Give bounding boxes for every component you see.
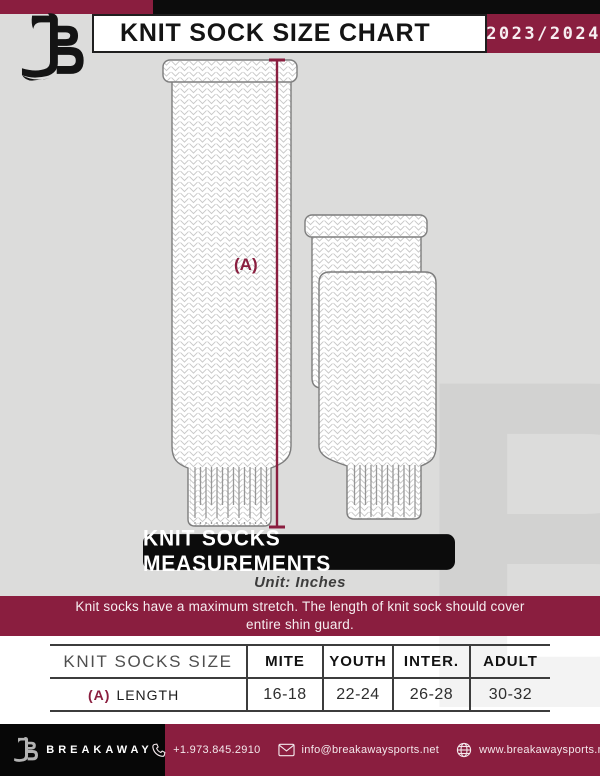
table-header-adult: ADULT xyxy=(470,645,550,678)
globe-icon xyxy=(456,742,472,758)
table-header-youth: YOUTH xyxy=(323,645,393,678)
email-address: info@breakawaysports.net xyxy=(302,744,440,756)
website-url: www.breakawaysports.net xyxy=(479,744,600,756)
title-box: KNIT SOCK SIZE CHART xyxy=(92,14,487,53)
contact-email: info@breakawaysports.net xyxy=(278,743,440,757)
unit-label: Unit: Inches xyxy=(0,574,600,591)
length-value-mite: 16-18 xyxy=(247,678,323,711)
knit-sock-size-chart-page: B KNIT SOCK SIZE CHART 2023/2024 xyxy=(0,0,600,776)
stretch-note-text: Knit socks have a maximum stretch. The l… xyxy=(60,598,540,634)
footer-brand-block: BREAKAWAY xyxy=(0,724,165,776)
email-icon xyxy=(278,743,295,757)
row-key-a: (A) xyxy=(88,687,110,703)
length-value-adult: 30-32 xyxy=(470,678,550,711)
phone-number: +1.973.845.2910 xyxy=(173,744,260,756)
stretch-note-banner: Knit socks have a maximum stretch. The l… xyxy=(0,596,600,636)
size-table-length-row: (A)LENGTH 16-18 22-24 26-28 30-32 xyxy=(50,678,550,711)
footer: BREAKAWAY +1.973.845.2910 info@breakaway… xyxy=(0,724,600,776)
contact-website: www.breakawaysports.net xyxy=(456,742,600,758)
table-header-mite: MITE xyxy=(247,645,323,678)
measurement-label-a: (A) xyxy=(234,255,258,274)
page-title: KNIT SOCK SIZE CHART xyxy=(120,19,430,48)
contact-phone: +1.973.845.2910 xyxy=(151,743,260,758)
length-value-inter: 26-28 xyxy=(393,678,470,711)
breakaway-b-logo xyxy=(16,10,84,89)
breakaway-footer-logo xyxy=(12,735,38,765)
length-value-youth: 22-24 xyxy=(323,678,393,711)
top-strip-black-segment xyxy=(153,0,600,14)
table-header-inter: INTER. xyxy=(393,645,470,678)
sock-small-front xyxy=(319,272,436,519)
top-accent-strip xyxy=(0,0,600,14)
measurements-banner: KNIT SOCKS MEASUREMENTS xyxy=(143,534,455,570)
size-table: KNIT SOCKS SIZE MITE YOUTH INTER. ADULT … xyxy=(50,644,550,712)
knit-sock-diagram: (A) xyxy=(0,0,600,596)
table-header-knit-socks-size: KNIT SOCKS SIZE xyxy=(50,645,247,678)
season-badge: 2023/2024 xyxy=(487,14,600,53)
brand-name: BREAKAWAY xyxy=(46,744,153,756)
phone-icon xyxy=(151,743,166,758)
row-label-text: LENGTH xyxy=(116,687,179,703)
row-label-length: (A)LENGTH xyxy=(50,678,247,711)
size-table-header-row: KNIT SOCKS SIZE MITE YOUTH INTER. ADULT xyxy=(50,645,550,678)
footer-contact-block: +1.973.845.2910 info@breakawaysports.net xyxy=(165,724,600,776)
